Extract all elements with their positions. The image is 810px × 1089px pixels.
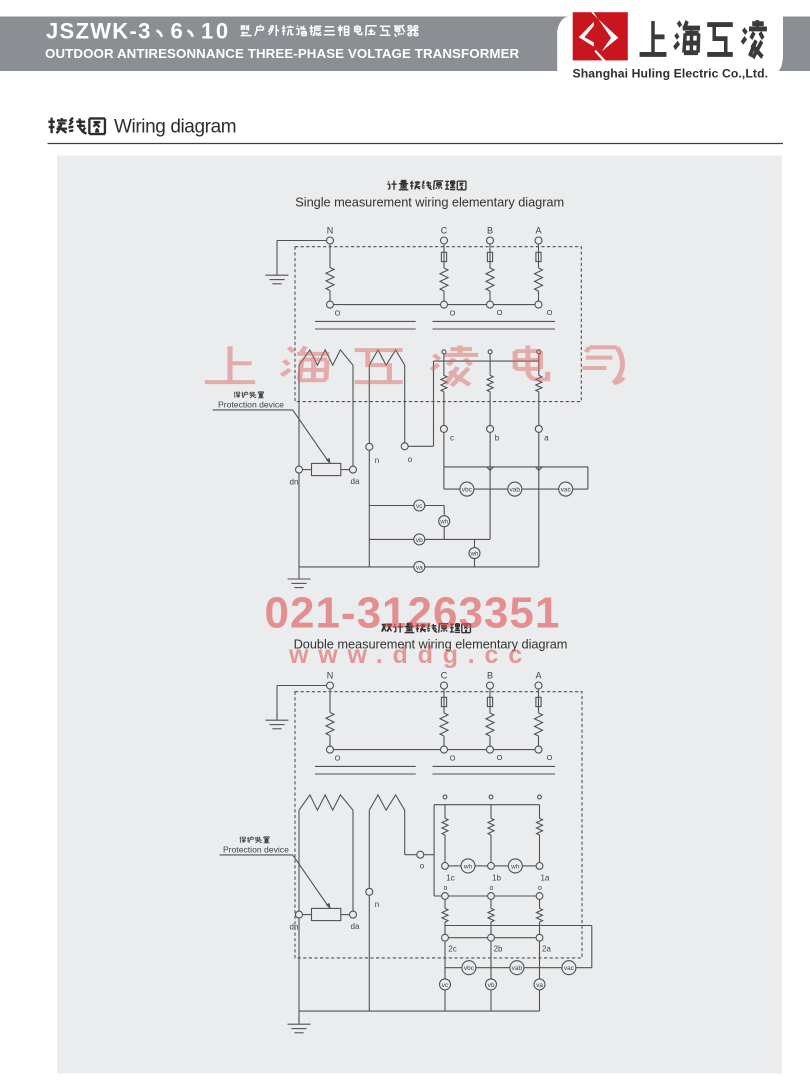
svg-text:wh: wh [463, 863, 473, 870]
svg-text:A: A [535, 226, 541, 236]
svg-text:O: O [547, 753, 553, 762]
svg-text:a: a [544, 434, 549, 443]
svg-text:2a: 2a [542, 945, 551, 954]
svg-text:JSZWK-3: JSZWK-3 [46, 19, 152, 44]
svg-text:2b: 2b [494, 945, 503, 954]
svg-text:1a: 1a [541, 873, 550, 882]
svg-text:Shanghai Huling Electric Co.,L: Shanghai Huling Electric Co.,Ltd. [573, 67, 769, 81]
svg-text:6: 6 [171, 19, 183, 44]
svg-text:vb: vb [416, 537, 423, 544]
svg-text:o: o [538, 885, 542, 892]
svg-text:O: O [450, 309, 456, 318]
svg-text:n: n [375, 900, 379, 909]
svg-text:o: o [408, 455, 413, 464]
svg-text:n: n [375, 456, 379, 465]
svg-text:vbc: vbc [464, 965, 475, 972]
svg-text:N: N [327, 671, 334, 681]
svg-text:C: C [441, 226, 448, 236]
svg-text:O: O [497, 753, 503, 762]
svg-text:b: b [495, 434, 500, 443]
svg-text:www.ddg.cc: www.ddg.cc [288, 641, 532, 669]
svg-text:vbc: vbc [462, 487, 473, 494]
svg-text:10: 10 [201, 19, 231, 44]
svg-text:vab: vab [510, 487, 521, 494]
svg-text:O: O [335, 309, 341, 318]
svg-text:vc: vc [442, 982, 449, 989]
svg-text:da: da [351, 922, 360, 931]
svg-text:vac: vac [561, 487, 572, 494]
svg-text:da: da [351, 477, 360, 486]
svg-text:vc: vc [416, 503, 423, 510]
svg-text:2c: 2c [448, 945, 456, 954]
svg-text:wh: wh [510, 863, 520, 870]
svg-text:vb: vb [488, 982, 495, 989]
svg-text:1b: 1b [492, 873, 501, 882]
svg-text:Single measurement wiring elem: Single measurement wiring elementary dia… [295, 195, 564, 210]
svg-text:o: o [444, 885, 448, 892]
svg-text:O: O [450, 754, 456, 763]
svg-text:Wiring diagram: Wiring diagram [114, 116, 236, 137]
svg-text:N: N [327, 226, 334, 236]
svg-text:va: va [536, 982, 543, 989]
svg-text:wh: wh [470, 552, 479, 558]
svg-text:B: B [487, 226, 493, 236]
svg-text:c: c [450, 434, 454, 443]
svg-text:021-31263351: 021-31263351 [265, 589, 561, 638]
svg-text:vab: vab [512, 965, 523, 972]
svg-text:Protection device: Protection device [218, 399, 284, 409]
svg-text:A: A [535, 671, 541, 681]
svg-text:O: O [547, 308, 553, 317]
svg-text:C: C [441, 671, 448, 681]
svg-text:o: o [420, 861, 425, 870]
svg-text:dn: dn [290, 478, 299, 487]
svg-text:dn: dn [290, 923, 299, 932]
svg-text:O: O [335, 754, 341, 763]
svg-text:o: o [490, 885, 494, 892]
svg-text:OUTDOOR ANTIRESONNANCE THREE-P: OUTDOOR ANTIRESONNANCE THREE-PHASE VOLTA… [45, 46, 520, 61]
svg-text:B: B [487, 671, 493, 681]
svg-text:O: O [497, 308, 503, 317]
svg-text:Protection device: Protection device [223, 844, 289, 854]
svg-text:1c: 1c [446, 873, 454, 882]
svg-text:wh: wh [439, 520, 448, 526]
svg-text:vac: vac [564, 965, 575, 972]
svg-text:va: va [416, 564, 423, 571]
